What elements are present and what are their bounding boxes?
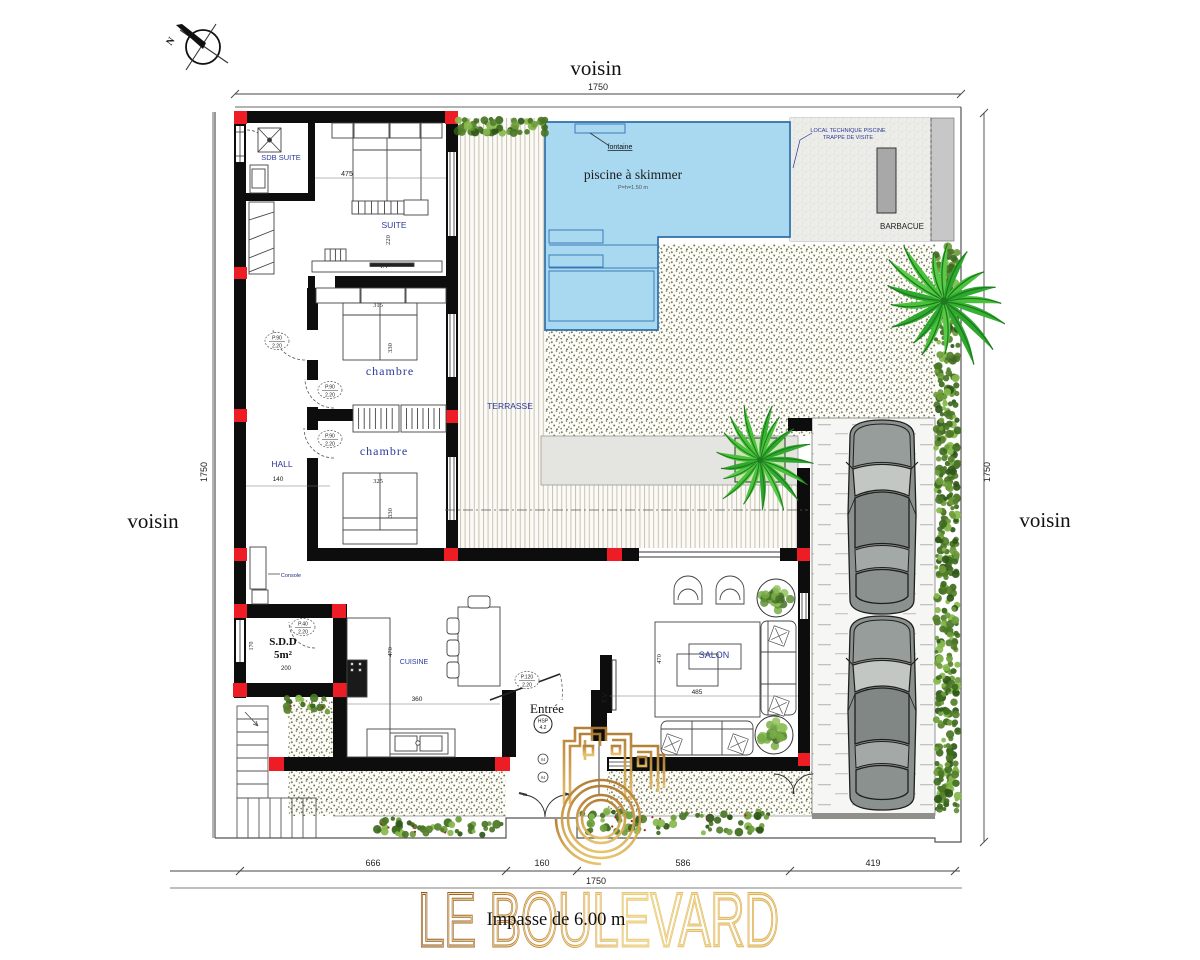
- svg-text:325: 325: [373, 478, 383, 485]
- svg-text:chambre: chambre: [360, 444, 408, 458]
- svg-text:voisin: voisin: [570, 56, 622, 80]
- svg-text:S.D.D: S.D.D: [269, 636, 297, 648]
- svg-text:2.20: 2.20: [325, 442, 335, 448]
- svg-text:piscine à skimmer: piscine à skimmer: [584, 167, 683, 182]
- svg-text:485: 485: [692, 689, 703, 696]
- svg-text:chambre: chambre: [366, 364, 414, 378]
- svg-text:voisin: voisin: [1019, 508, 1071, 532]
- svg-text:P.90: P.90: [325, 434, 335, 440]
- svg-text:P=h=1.50 m: P=h=1.50 m: [618, 185, 648, 191]
- svg-text:315: 315: [373, 302, 383, 309]
- svg-text:fontaine: fontaine: [608, 144, 633, 151]
- svg-text:SALON: SALON: [699, 650, 730, 660]
- svg-text:T.V: T.V: [379, 264, 389, 270]
- svg-text:666: 666: [365, 858, 380, 868]
- svg-text:1750: 1750: [588, 82, 608, 92]
- svg-text:2.20: 2.20: [325, 393, 335, 399]
- svg-text:475: 475: [341, 171, 353, 178]
- svg-text:220: 220: [385, 235, 392, 245]
- svg-text:LOCAL TECHNIQUE PISCINE: LOCAL TECHNIQUE PISCINE: [810, 128, 886, 134]
- svg-text:CUISINE: CUISINE: [400, 659, 429, 666]
- svg-text:voisin: voisin: [127, 509, 179, 533]
- svg-text:04: 04: [541, 775, 546, 780]
- svg-text:Entrée: Entrée: [530, 701, 564, 716]
- svg-text:419: 419: [865, 858, 880, 868]
- svg-text:470: 470: [656, 654, 663, 664]
- svg-text:BARBACUE: BARBACUE: [880, 222, 924, 231]
- svg-text:2.20: 2.20: [298, 630, 308, 636]
- svg-text:T.V: T.V: [602, 693, 609, 703]
- svg-text:330: 330: [387, 508, 394, 518]
- svg-text:Console: Console: [281, 573, 301, 579]
- svg-text:140: 140: [273, 476, 284, 483]
- svg-text:586: 586: [675, 858, 690, 868]
- svg-text:2.20: 2.20: [522, 683, 532, 689]
- svg-text:Impasse de 6.00 m: Impasse de 6.00 m: [487, 910, 626, 930]
- svg-text:470: 470: [387, 647, 394, 657]
- svg-text:330: 330: [387, 343, 394, 353]
- svg-text:4.2: 4.2: [540, 725, 547, 731]
- svg-text:SDB SUITE: SDB SUITE: [261, 153, 301, 162]
- svg-text:200: 200: [281, 666, 292, 672]
- svg-text:SUITE: SUITE: [381, 220, 406, 230]
- svg-text:TERRASSE: TERRASSE: [487, 401, 533, 411]
- svg-text:1750: 1750: [199, 462, 209, 482]
- svg-text:P.90: P.90: [325, 385, 335, 391]
- svg-text:HALL: HALL: [271, 459, 293, 469]
- svg-text:5m²: 5m²: [274, 649, 293, 661]
- svg-text:2.20: 2.20: [272, 344, 282, 350]
- svg-text:160: 160: [534, 858, 549, 868]
- svg-text:170: 170: [249, 642, 255, 651]
- svg-text:HSP: HSP: [538, 719, 549, 725]
- svg-text:TRAPPE DE VISITE: TRAPPE DE VISITE: [823, 135, 873, 141]
- svg-text:1750: 1750: [982, 462, 992, 482]
- svg-text:04: 04: [541, 757, 546, 762]
- svg-text:360: 360: [412, 696, 423, 703]
- svg-text:P.90: P.90: [272, 336, 282, 342]
- svg-text:P.40: P.40: [298, 622, 308, 628]
- svg-text:P.120: P.120: [521, 675, 534, 681]
